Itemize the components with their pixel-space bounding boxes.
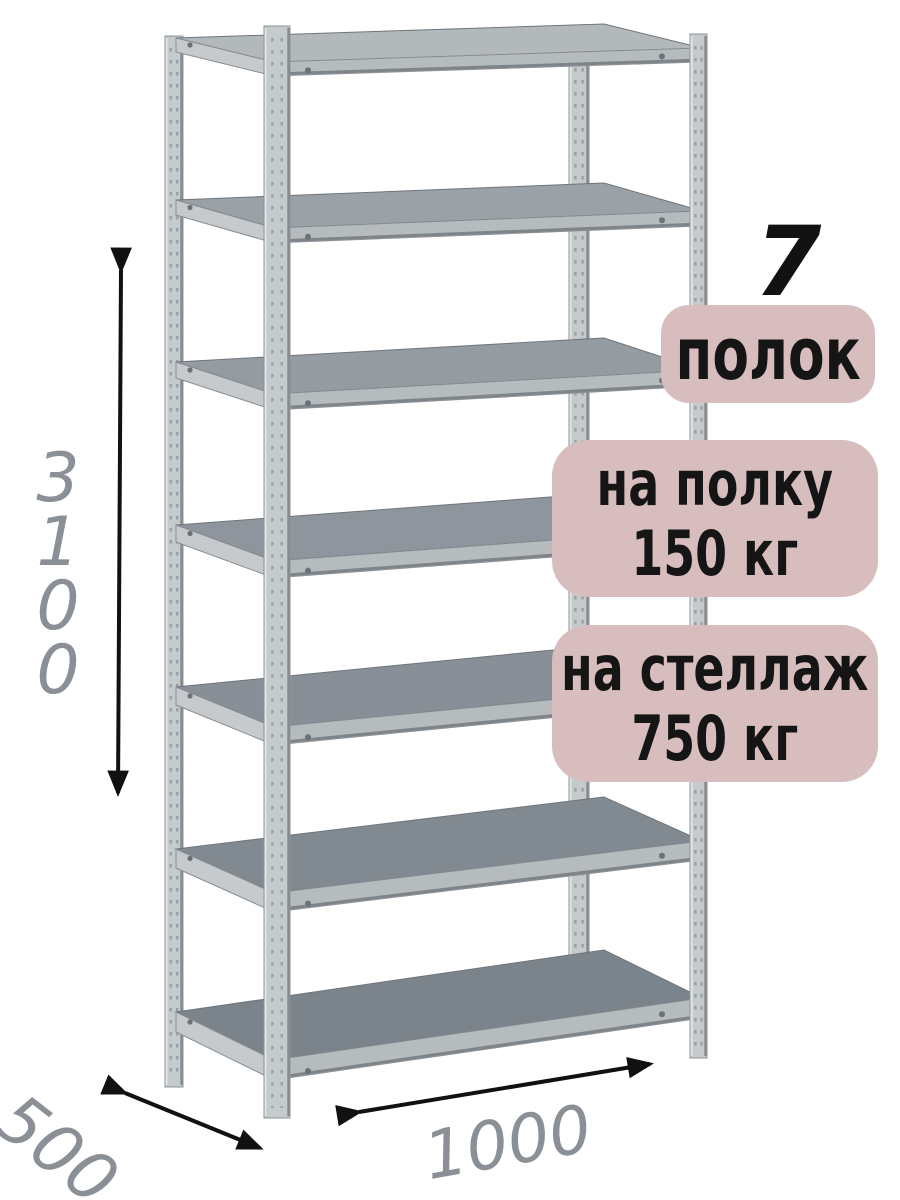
product-illustration: 7 полок на полку 150 кг на стеллаж 750 к… <box>0 0 900 1200</box>
bolt <box>187 1019 192 1024</box>
shelf-count-number: 7 <box>748 214 828 310</box>
bolt <box>659 1011 665 1017</box>
shelf-load-badge: на полку 150 кг <box>552 440 878 597</box>
bolt <box>187 531 192 536</box>
rack-front-left-post <box>264 26 290 1118</box>
bolt <box>187 693 192 698</box>
bolt <box>187 856 192 861</box>
bolt <box>305 67 311 73</box>
rack-load-line1: на стеллаж <box>561 634 868 704</box>
shelf-count-label: полок <box>675 312 860 396</box>
bolt <box>305 234 311 240</box>
depth-dimension-arrow <box>125 1093 260 1148</box>
bolt <box>659 217 665 223</box>
bolt <box>187 367 192 372</box>
bolt <box>187 42 192 47</box>
bolt <box>187 205 192 210</box>
bolt <box>659 53 665 59</box>
rack-load-line2: 750 кг <box>632 704 799 774</box>
shelf-load-line1: на полку <box>597 449 834 519</box>
shelf-count-badge: полок <box>661 305 875 403</box>
rack-load-badge: на стеллаж 750 кг <box>552 625 878 782</box>
bolt <box>305 400 311 406</box>
bolt <box>305 901 311 907</box>
height-dimension-label: 3100 <box>33 447 83 703</box>
height-dimension-arrow <box>118 270 121 793</box>
bolt <box>305 1068 311 1074</box>
bolt <box>659 853 665 859</box>
shelving-rack-graphic <box>0 0 900 1200</box>
bolt <box>305 734 311 740</box>
bolt <box>305 568 311 574</box>
shelf-load-line2: 150 кг <box>632 519 799 589</box>
